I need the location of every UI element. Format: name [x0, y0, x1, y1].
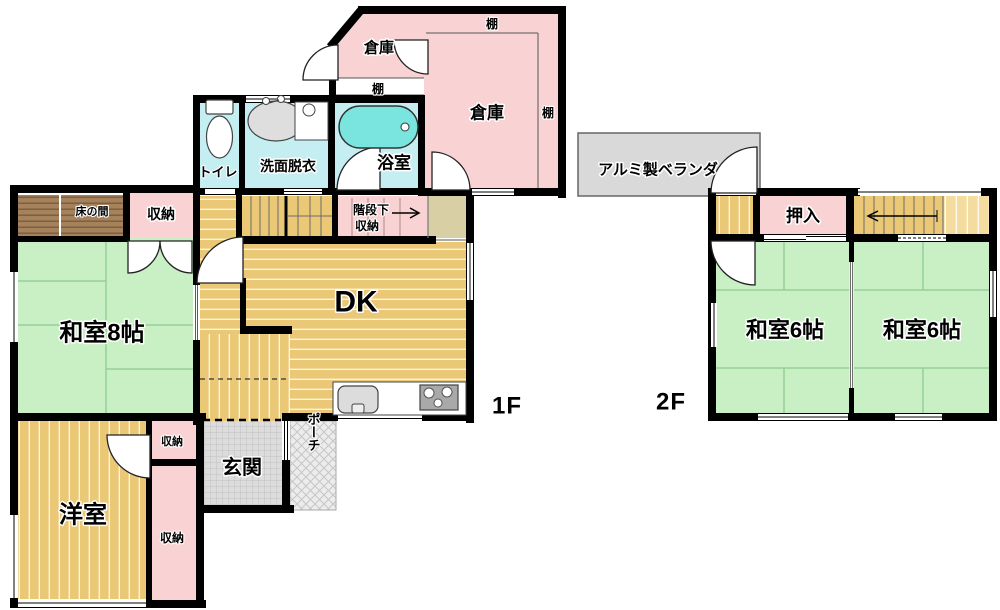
label-washroom: 洗面脱衣 [260, 158, 317, 174]
label-tokonoma: 床の間 [76, 204, 109, 218]
label-toilet: トイレ [198, 165, 237, 180]
label-bathroom: 浴室 [377, 153, 411, 173]
label-closet-bottom: 収納 [160, 530, 184, 545]
label-dk: DK [334, 286, 378, 319]
understairs-landing [428, 196, 466, 238]
label-floor-2f: 2F [656, 389, 686, 416]
hallway-2f [716, 196, 753, 234]
stairs-2f [854, 196, 943, 234]
label-oshiire: 押入 [786, 206, 820, 226]
label-shelf-small: 棚 [372, 81, 384, 96]
label-washitsu6-left: 和室6帖 [746, 318, 824, 343]
label-floor-1f: 1F [492, 393, 522, 420]
toilet-bowl-icon [207, 116, 233, 158]
label-storage-large: 倉庫 [469, 103, 504, 123]
label-genkan: 玄関 [222, 455, 262, 479]
label-veranda: アルミ製ベランダ [598, 161, 718, 179]
stairs-landing-2f [943, 196, 989, 234]
label-closet-mid: 収納 [161, 434, 183, 448]
label-shelf-top: 棚 [486, 16, 498, 31]
label-washitsu8: 和室8帖 [59, 319, 144, 347]
label-porch: ポーチ [306, 412, 321, 452]
floor-plan-svg: 倉庫 棚 棚 倉庫 棚 トイレ 洗面脱衣 浴室 床の間 収納 階段下 収納 和室… [0, 0, 1000, 610]
toilet-tank-icon [206, 100, 233, 114]
label-closet-top: 収納 [147, 206, 175, 222]
label-shelf-right: 棚 [542, 105, 554, 120]
hall-lower [200, 334, 290, 421]
label-storage-small: 倉庫 [363, 39, 394, 57]
label-yoshitsu: 洋室 [59, 501, 107, 529]
floor-plan: 倉庫 棚 棚 倉庫 棚 トイレ 洗面脱衣 浴室 床の間 収納 階段下 収納 和室… [0, 0, 1000, 610]
label-understairs-1: 階段下 [353, 202, 389, 217]
label-washitsu6-right: 和室6帖 [883, 318, 961, 343]
label-understairs-2: 収納 [355, 218, 379, 233]
